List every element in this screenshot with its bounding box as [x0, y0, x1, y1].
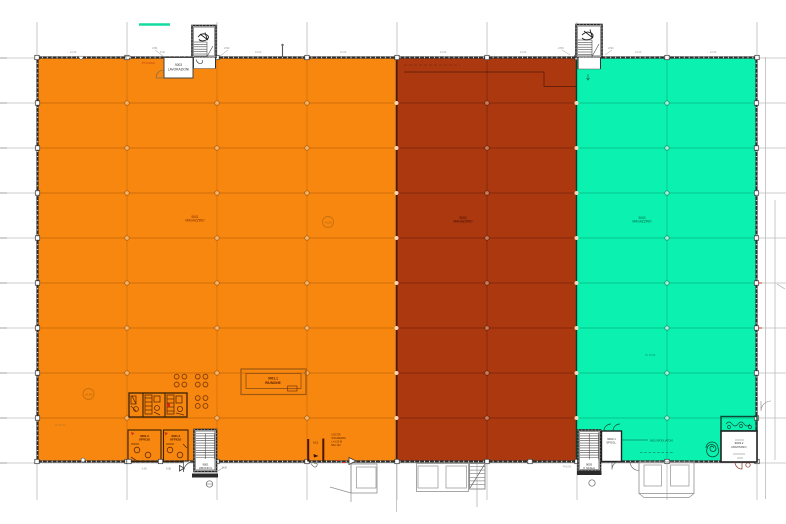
- svg-text:+0.00: +0.00: [324, 221, 332, 225]
- svg-text:12.00: 12.00: [70, 51, 77, 54]
- svg-text:MOZITANO: MOZITANO: [731, 445, 747, 449]
- svg-text:+0.00: +0.00: [85, 393, 93, 397]
- svg-text:12.00: 12.00: [520, 51, 527, 54]
- svg-text:UFFICIO C: UFFICIO C: [199, 466, 212, 470]
- svg-text:MAGAZZINO: MAGAZZINO: [633, 220, 652, 224]
- svg-text:MAGAZZINO: MAGAZZINO: [186, 219, 205, 223]
- svg-text:MAGAZZINO: MAGAZZINO: [454, 220, 473, 224]
- svg-text:UFFICIO: UFFICIO: [139, 438, 151, 442]
- svg-text:REI 120: REI 120: [332, 444, 342, 447]
- svg-text:SPOGL.: SPOGL.: [606, 441, 617, 445]
- svg-text:H= 10.50: H= 10.50: [55, 423, 66, 427]
- svg-text:0.30: 0.30: [166, 468, 171, 471]
- svg-text:UFFICIO: UFFICIO: [170, 438, 182, 442]
- svg-text:12.00: 12.00: [440, 51, 447, 54]
- svg-text:PT.A MAG.: PT.A MAG.: [142, 61, 156, 65]
- svg-text:12.00: 12.00: [340, 51, 347, 54]
- svg-text:LT04: LT04: [608, 47, 614, 50]
- svg-text:P=10%: P=10%: [563, 466, 572, 469]
- svg-text:9003 SPOGLIATOIO: 9003 SPOGLIATOIO: [650, 440, 673, 443]
- svg-text:V. SCALA: V. SCALA: [583, 466, 595, 470]
- svg-text:9003: 9003: [175, 63, 182, 67]
- svg-text:AC1: AC1: [313, 441, 319, 445]
- svg-text:LAVORAZIONI: LAVORAZIONI: [168, 68, 189, 72]
- svg-text:8.40: 8.40: [160, 51, 165, 54]
- svg-text:-0.05: -0.05: [141, 467, 147, 470]
- svg-text:LT02: LT02: [224, 47, 230, 50]
- svg-text:12.00: 12.00: [635, 51, 642, 54]
- svg-text:12.00: 12.00: [255, 51, 262, 54]
- svg-text:LT03: LT03: [558, 47, 564, 50]
- svg-text:RIUNIONE: RIUNIONE: [265, 381, 281, 385]
- svg-text:H= 10.50: H= 10.50: [645, 354, 656, 357]
- svg-text:LT01: LT01: [152, 47, 158, 50]
- svg-text:12.00: 12.00: [710, 51, 717, 54]
